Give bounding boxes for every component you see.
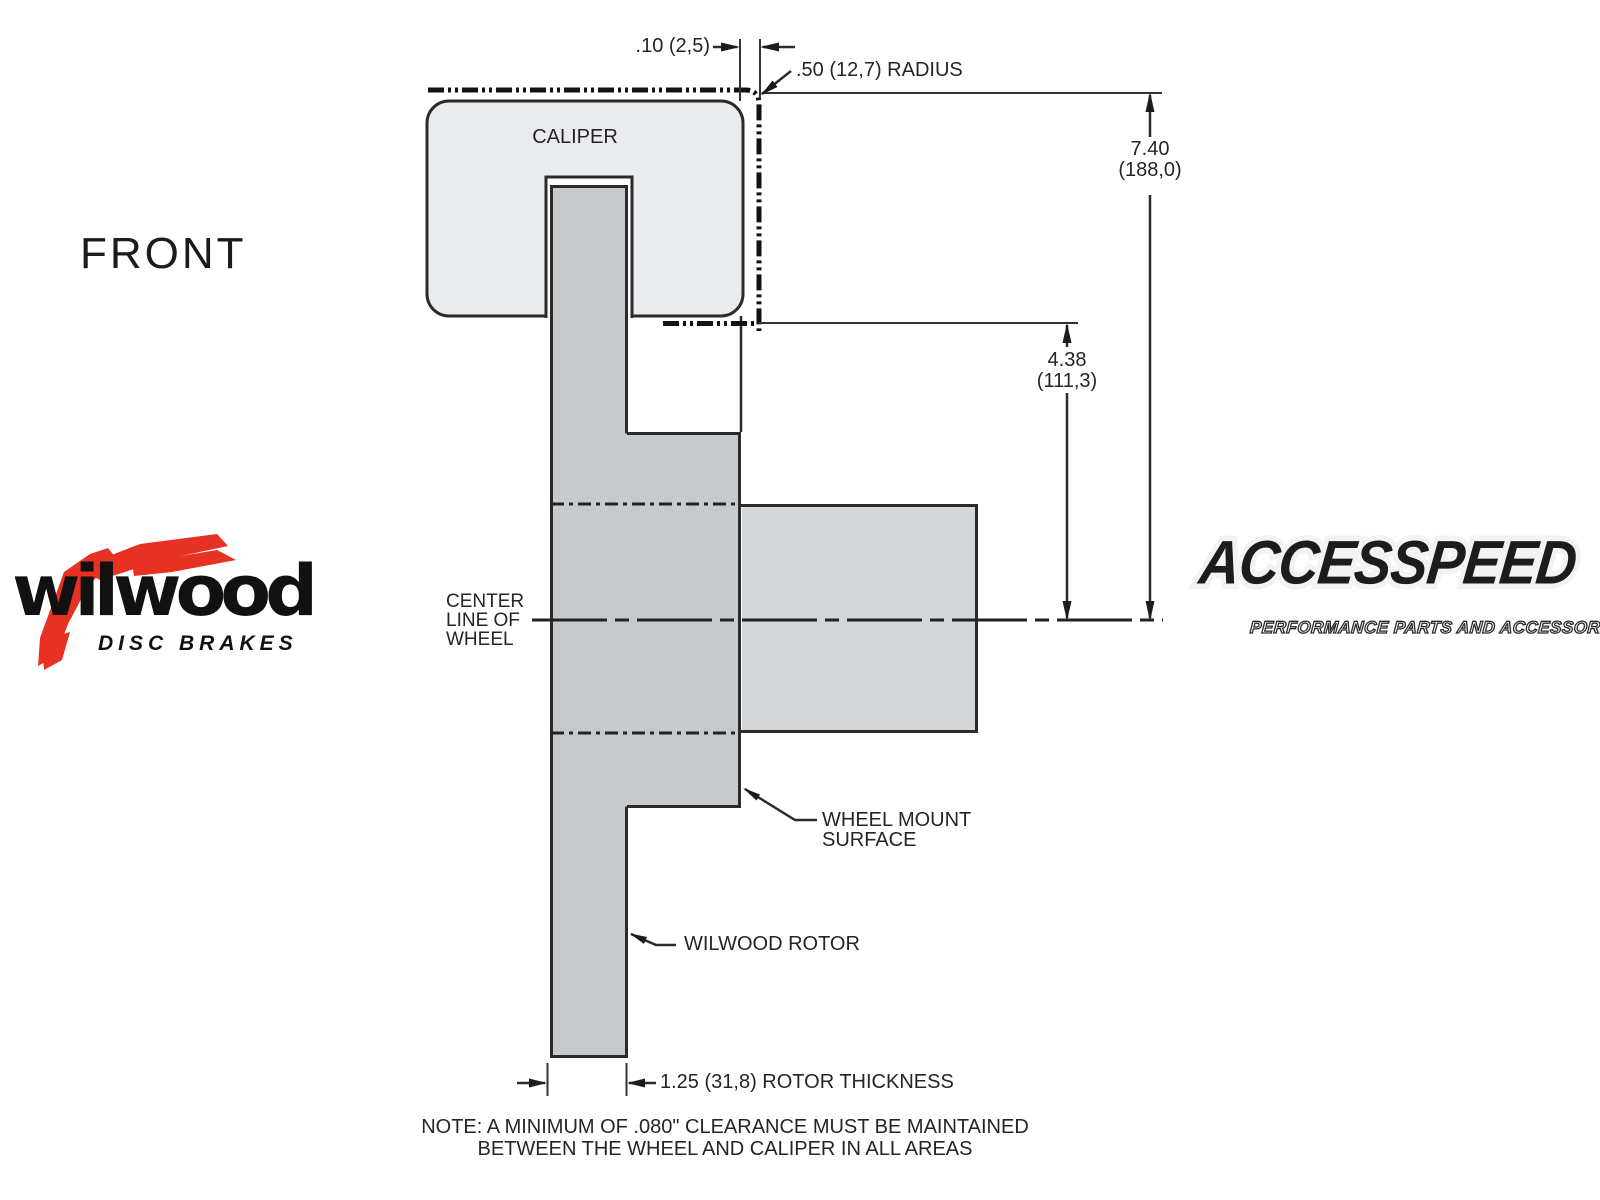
dim-mount-to-center-metric: (111,3) (1007, 371, 1127, 392)
accesspeed-logo: ACCESSPEED ACCESSPEED PERFORMANCE PARTS … (1198, 524, 1600, 649)
wilwood-rotor-label: WILWOOD ROTOR (684, 934, 860, 955)
caliper-label: CALIPER (515, 127, 635, 148)
rotor-thickness-label: 1.25 (31,8) ROTOR THICKNESS (660, 1072, 954, 1093)
wilwood-wordmark: wilwood (12, 550, 312, 632)
dim-overall-height-value: 7.40 (1090, 139, 1210, 160)
wheel-mount-surface-label: WHEEL MOUNT SURFACE (822, 810, 971, 850)
clearance-note: NOTE: A MINIMUM OF .080" CLEARANCE MUST … (360, 1116, 1090, 1160)
dim-mount-to-center-value: 4.38 (1007, 350, 1127, 371)
dim-overall-height-label: 7.40 (188,0) (1090, 139, 1210, 181)
dim-radius-label: .50 (12,7) RADIUS (796, 60, 963, 81)
brake-clearance-diagram: FRONT CALIPER .10 (2,5) .50 (12,7) RADIU… (0, 0, 1600, 1200)
wilwood-tagline: DISC BRAKES (98, 632, 298, 656)
dim-mount-to-center-label: 4.38 (111,3) (1007, 350, 1127, 392)
wilwood-logo: wilwood DISC BRAKES (12, 520, 332, 670)
view-label: FRONT (80, 243, 247, 264)
dim-caliper-gap-label: .10 (2,5) (580, 36, 710, 57)
accesspeed-wordmark: ACCESSPEED ACCESSPEED (1189, 524, 1600, 612)
accesspeed-tagline: PERFORMANCE PARTS AND ACCESSORIES (1249, 618, 1600, 638)
centerline-label: CENTER LINE OF WHEEL (446, 592, 524, 649)
dim-overall-height-metric: (188,0) (1090, 160, 1210, 181)
